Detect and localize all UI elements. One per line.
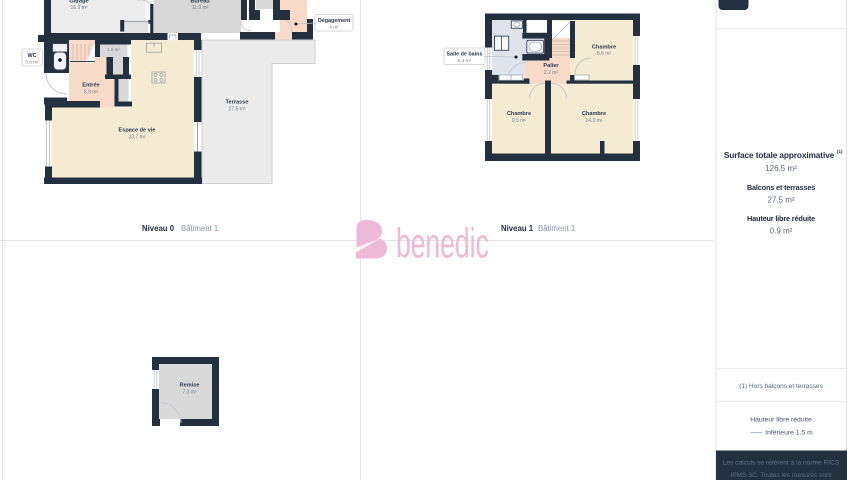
svg-text:Remise: Remise	[180, 383, 200, 389]
svg-text:Bureau: Bureau	[190, 0, 210, 5]
svg-text:0.9 m²: 0.9 m²	[770, 227, 793, 236]
svg-text:Espace de vie: Espace de vie	[118, 128, 155, 134]
svg-text:27.5 m²: 27.5 m²	[767, 196, 794, 205]
svg-text:16.9 m²: 16.9 m²	[71, 5, 88, 11]
svg-text:2.2 m²: 2.2 m²	[544, 70, 559, 76]
svg-text:Balcons et terrasses: Balcons et terrasses	[747, 183, 815, 192]
svg-text:Chambre: Chambre	[507, 111, 531, 117]
svg-text:Surface totale approximative: Surface totale approximative	[724, 150, 835, 160]
svg-text:9.5 m²: 9.5 m²	[512, 118, 527, 124]
svg-text:4 m²: 4 m²	[329, 25, 339, 31]
svg-text:1.6 m²: 1.6 m²	[107, 47, 120, 52]
svg-text:Hauteur libre réduite: Hauteur libre réduite	[747, 214, 815, 223]
svg-text:Bâtiment 1: Bâtiment 1	[181, 224, 218, 233]
svg-text:Salle de bains: Salle de bains	[447, 52, 483, 58]
svg-text:benedic: benedic	[396, 220, 489, 267]
svg-text:Entrée: Entrée	[82, 83, 99, 89]
svg-text:8.6 m²: 8.6 m²	[597, 51, 612, 57]
svg-text:Hauteur libre réduite: Hauteur libre réduite	[750, 417, 812, 424]
svg-text:Chambre: Chambre	[592, 45, 616, 51]
svg-text:Niveau 0: Niveau 0	[142, 224, 175, 233]
svg-text:27.5 m²: 27.5 m²	[229, 107, 246, 113]
svg-text:6.9 m²: 6.9 m²	[84, 90, 99, 96]
svg-text:5.4 m²: 5.4 m²	[458, 58, 472, 64]
svg-text:(1): (1)	[837, 149, 843, 154]
svg-text:7.3 m²: 7.3 m²	[182, 390, 197, 396]
svg-text:Terrasse: Terrasse	[226, 100, 249, 106]
svg-text:Bâtiment 1: Bâtiment 1	[538, 224, 575, 233]
svg-text:33.7 m²: 33.7 m²	[129, 135, 146, 141]
svg-text:14.3 m²: 14.3 m²	[586, 118, 603, 124]
svg-text:126.5 m²: 126.5 m²	[765, 164, 797, 173]
svg-text:Inférieure 1.5 m: Inférieure 1.5 m	[765, 430, 813, 437]
svg-text:Chambre: Chambre	[582, 111, 606, 117]
svg-text:Palier: Palier	[543, 63, 559, 69]
svg-text:Niveau 1: Niveau 1	[501, 224, 534, 233]
svg-text:Dégagement: Dégagement	[318, 18, 351, 24]
svg-text:(1) Hors balcons et terrasses: (1) Hors balcons et terrasses	[739, 383, 823, 390]
svg-text:0.8 m²: 0.8 m²	[25, 60, 39, 66]
svg-text:Garage: Garage	[69, 0, 88, 5]
svg-text:11.9 m²: 11.9 m²	[192, 5, 209, 11]
svg-text:IPMS 3C. Toutes les mesures so: IPMS 3C. Toutes les mesures sont	[730, 472, 831, 479]
svg-text:WC: WC	[28, 53, 37, 59]
svg-text:Les calculs se réfèrent à la n: Les calculs se réfèrent à la norme RICS	[723, 460, 840, 467]
